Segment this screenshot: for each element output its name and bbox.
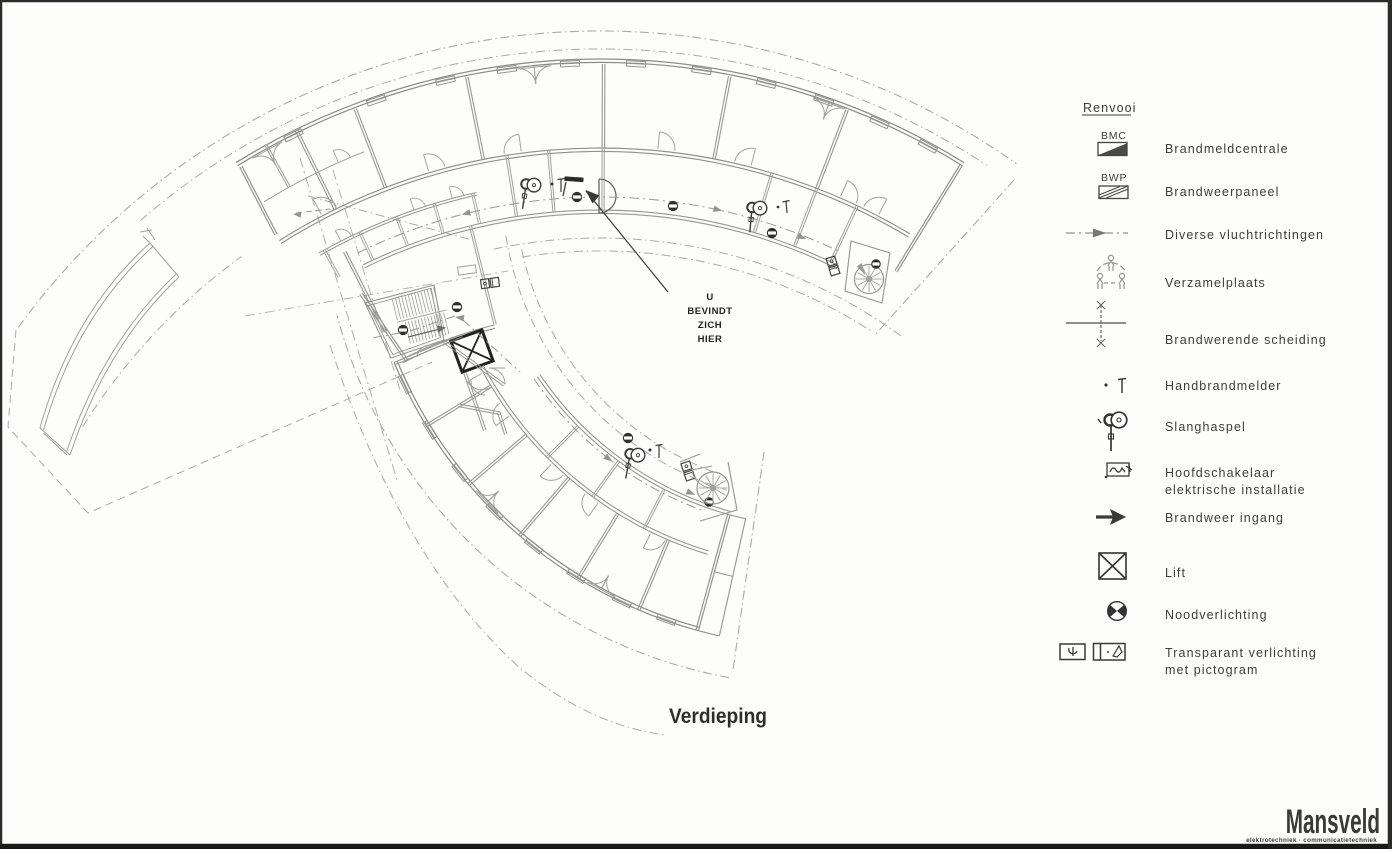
svg-text:Slanghaspel: Slanghaspel xyxy=(1165,420,1246,434)
svg-text:Brandweerpaneel: Brandweerpaneel xyxy=(1165,185,1280,199)
svg-text:Brandmeldcentrale: Brandmeldcentrale xyxy=(1165,142,1289,156)
svg-text:Verdieping: Verdieping xyxy=(669,705,767,728)
svg-text:Brandweer ingang: Brandweer ingang xyxy=(1165,511,1284,525)
svg-text:ZICH: ZICH xyxy=(698,320,722,331)
svg-text:Verzamelplaats: Verzamelplaats xyxy=(1165,276,1266,290)
svg-text:HIER: HIER xyxy=(698,334,723,345)
svg-text:Brandwerende scheiding: Brandwerende scheiding xyxy=(1165,333,1327,347)
svg-text:met pictogram: met pictogram xyxy=(1165,663,1259,677)
svg-text:Noodverlichting: Noodverlichting xyxy=(1165,608,1268,622)
svg-text:elektrotechniek · communicatie: elektrotechniek · communicatietechniek xyxy=(1246,837,1377,844)
svg-text:Mansveld: Mansveld xyxy=(1286,803,1380,842)
svg-text:Transparant verlichting: Transparant verlichting xyxy=(1165,646,1317,660)
svg-text:Hoofdschakelaar: Hoofdschakelaar xyxy=(1165,466,1275,480)
svg-text:U: U xyxy=(706,292,713,303)
svg-text:BMC: BMC xyxy=(1101,130,1127,142)
svg-text:Handbrandmelder: Handbrandmelder xyxy=(1165,379,1282,393)
svg-text:BEVINDT: BEVINDT xyxy=(687,306,732,317)
svg-text:BWP: BWP xyxy=(1101,172,1127,184)
svg-text:Lift: Lift xyxy=(1165,566,1186,580)
svg-text:Diverse vluchtrichtingen: Diverse vluchtrichtingen xyxy=(1165,228,1324,242)
svg-text:elektrische installatie: elektrische installatie xyxy=(1165,483,1306,497)
svg-text:Renvooi: Renvooi xyxy=(1083,101,1137,115)
